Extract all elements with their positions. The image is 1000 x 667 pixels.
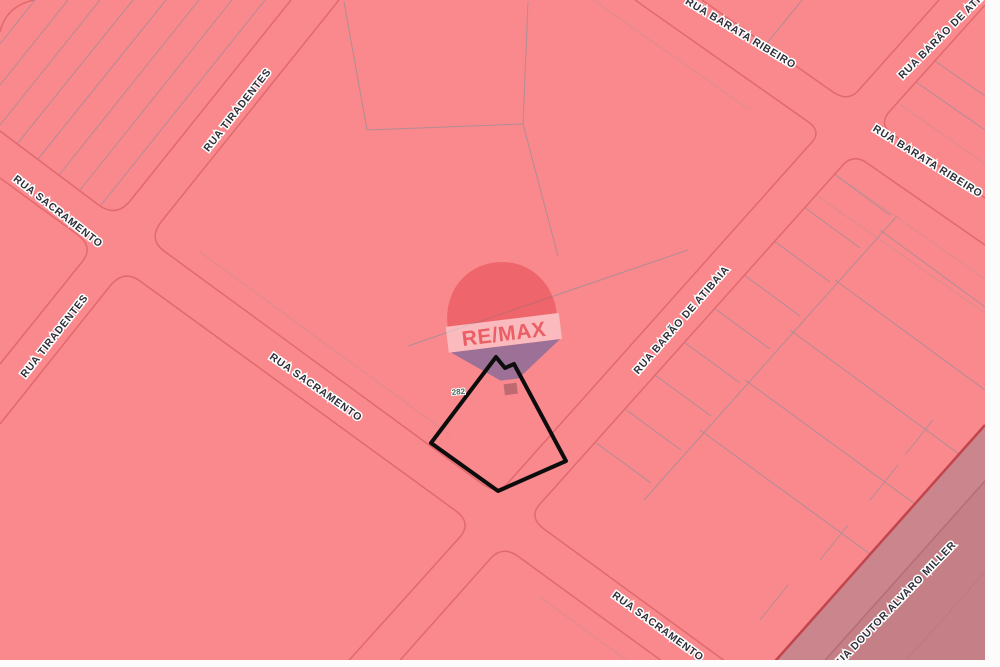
parcel-number-label: 282	[451, 387, 466, 397]
map-canvas[interactable]: RE/MAX 282 RUA SACRAMENTO RUA TIRADENTES…	[0, 0, 1000, 667]
bottom-margin	[0, 660, 1000, 667]
right-margin	[985, 0, 1000, 667]
map-viewport[interactable]: RE/MAX 282 RUA SACRAMENTO RUA TIRADENTES…	[0, 0, 1000, 667]
